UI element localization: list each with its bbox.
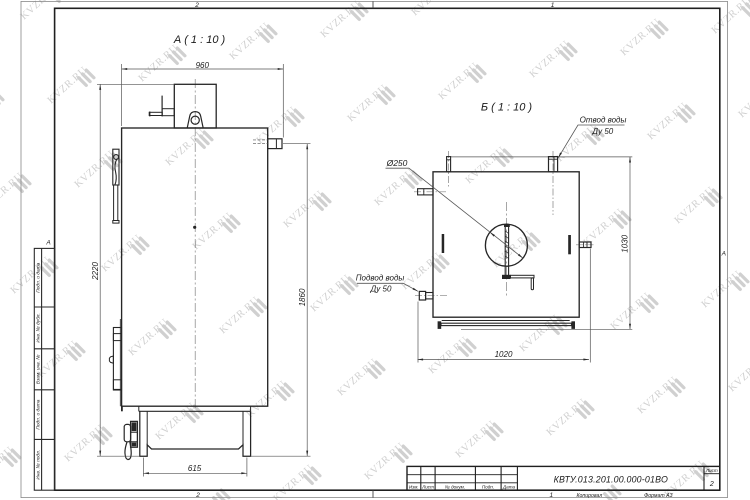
svg-text:Б ( 1 : 10 ): Б ( 1 : 10 ) <box>481 102 533 114</box>
svg-text:Подвод воды: Подвод воды <box>356 274 405 283</box>
svg-text:А: А <box>721 251 726 258</box>
svg-text:Изм.: Изм. <box>409 485 419 490</box>
svg-text:Ду 50: Ду 50 <box>370 284 392 293</box>
svg-text:1: 1 <box>551 2 555 9</box>
svg-text:Подп. и дата: Подп. и дата <box>36 262 42 292</box>
svg-text:№ докум.: № докум. <box>445 485 465 490</box>
svg-text:2: 2 <box>194 2 199 9</box>
svg-text:2220: 2220 <box>91 262 100 281</box>
svg-text:Ду 50: Ду 50 <box>591 127 613 136</box>
svg-text:Формат А3: Формат А3 <box>644 493 672 499</box>
svg-text:Подп. и дата: Подп. и дата <box>36 399 42 429</box>
svg-text:1860: 1860 <box>298 288 307 306</box>
svg-text:Ø250: Ø250 <box>386 158 408 168</box>
svg-text:Дата: Дата <box>502 485 516 490</box>
svg-text:2: 2 <box>709 481 714 488</box>
svg-text:615: 615 <box>188 464 202 473</box>
svg-text:Отвод воды: Отвод воды <box>580 115 627 124</box>
svg-text:КВТУ.013.201.00.000-01ВО: КВТУ.013.201.00.000-01ВО <box>554 475 668 485</box>
svg-text:960: 960 <box>196 61 210 70</box>
svg-text:А: А <box>45 240 50 247</box>
svg-text:А ( 1 : 10 ): А ( 1 : 10 ) <box>173 34 226 46</box>
svg-text:Копировал: Копировал <box>576 493 602 499</box>
svg-text:1020: 1020 <box>495 350 513 359</box>
svg-text:1030: 1030 <box>621 234 630 252</box>
svg-text:Взам. инв. №: Взам. инв. № <box>36 354 42 384</box>
svg-text:2: 2 <box>195 492 200 499</box>
svg-text:Инв. № подл.: Инв. № подл. <box>36 450 42 480</box>
svg-text:Инв. № дубл.: Инв. № дубл. <box>36 313 42 343</box>
svg-text:Подп.: Подп. <box>482 485 494 490</box>
svg-text:Лист: Лист <box>705 468 718 473</box>
svg-text:1: 1 <box>549 492 553 499</box>
svg-text:Лист: Лист <box>421 485 434 490</box>
